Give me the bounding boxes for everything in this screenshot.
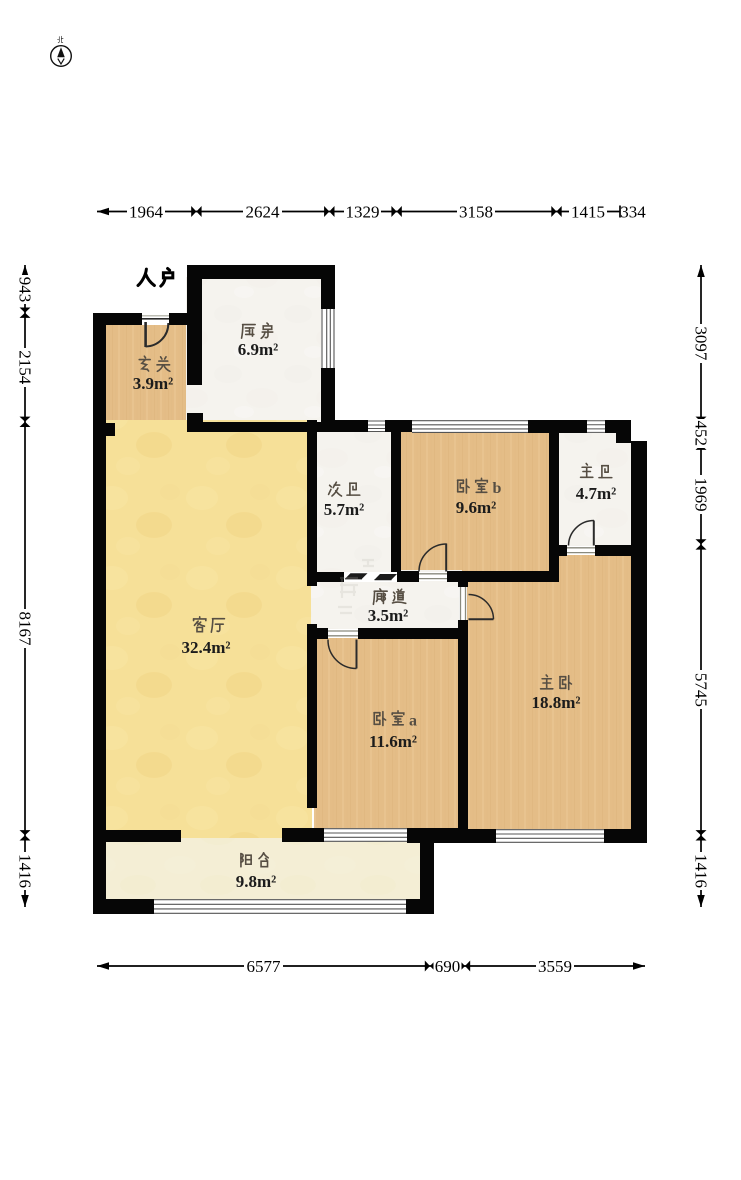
svg-text:6.9m²: 6.9m² [238, 340, 279, 359]
svg-text:a: a [409, 713, 417, 730]
svg-text:690: 690 [435, 957, 461, 976]
svg-text:5.7m²: 5.7m² [324, 500, 365, 519]
svg-text:3.9m²: 3.9m² [133, 374, 174, 393]
svg-text:452: 452 [692, 420, 711, 446]
svg-text:8167: 8167 [16, 612, 35, 647]
svg-text:5745: 5745 [692, 673, 711, 707]
svg-text:6577: 6577 [247, 957, 282, 976]
svg-text:32.4m²: 32.4m² [181, 638, 230, 657]
svg-text:2624: 2624 [246, 203, 281, 222]
svg-text:11.6m²: 11.6m² [369, 732, 417, 751]
svg-text:1415: 1415 [571, 203, 605, 222]
svg-text:b: b [493, 480, 502, 497]
svg-text:334: 334 [620, 203, 646, 222]
svg-text:943: 943 [16, 277, 35, 303]
svg-text:18.8m²: 18.8m² [531, 693, 580, 712]
svg-text:4.7m²: 4.7m² [576, 484, 617, 503]
svg-text:3.5m²: 3.5m² [368, 606, 409, 625]
svg-text:2154: 2154 [16, 350, 35, 385]
svg-text:3559: 3559 [538, 957, 572, 976]
svg-text:1329: 1329 [346, 203, 380, 222]
svg-text:1969: 1969 [692, 478, 711, 512]
svg-text:9.6m²: 9.6m² [456, 498, 497, 517]
svg-text:3097: 3097 [692, 326, 711, 361]
svg-text:1416: 1416 [692, 854, 711, 888]
svg-text:9.8m²: 9.8m² [236, 872, 277, 891]
svg-text:3158: 3158 [459, 203, 493, 222]
svg-text:1964: 1964 [129, 203, 164, 222]
svg-text:1416: 1416 [16, 854, 35, 888]
